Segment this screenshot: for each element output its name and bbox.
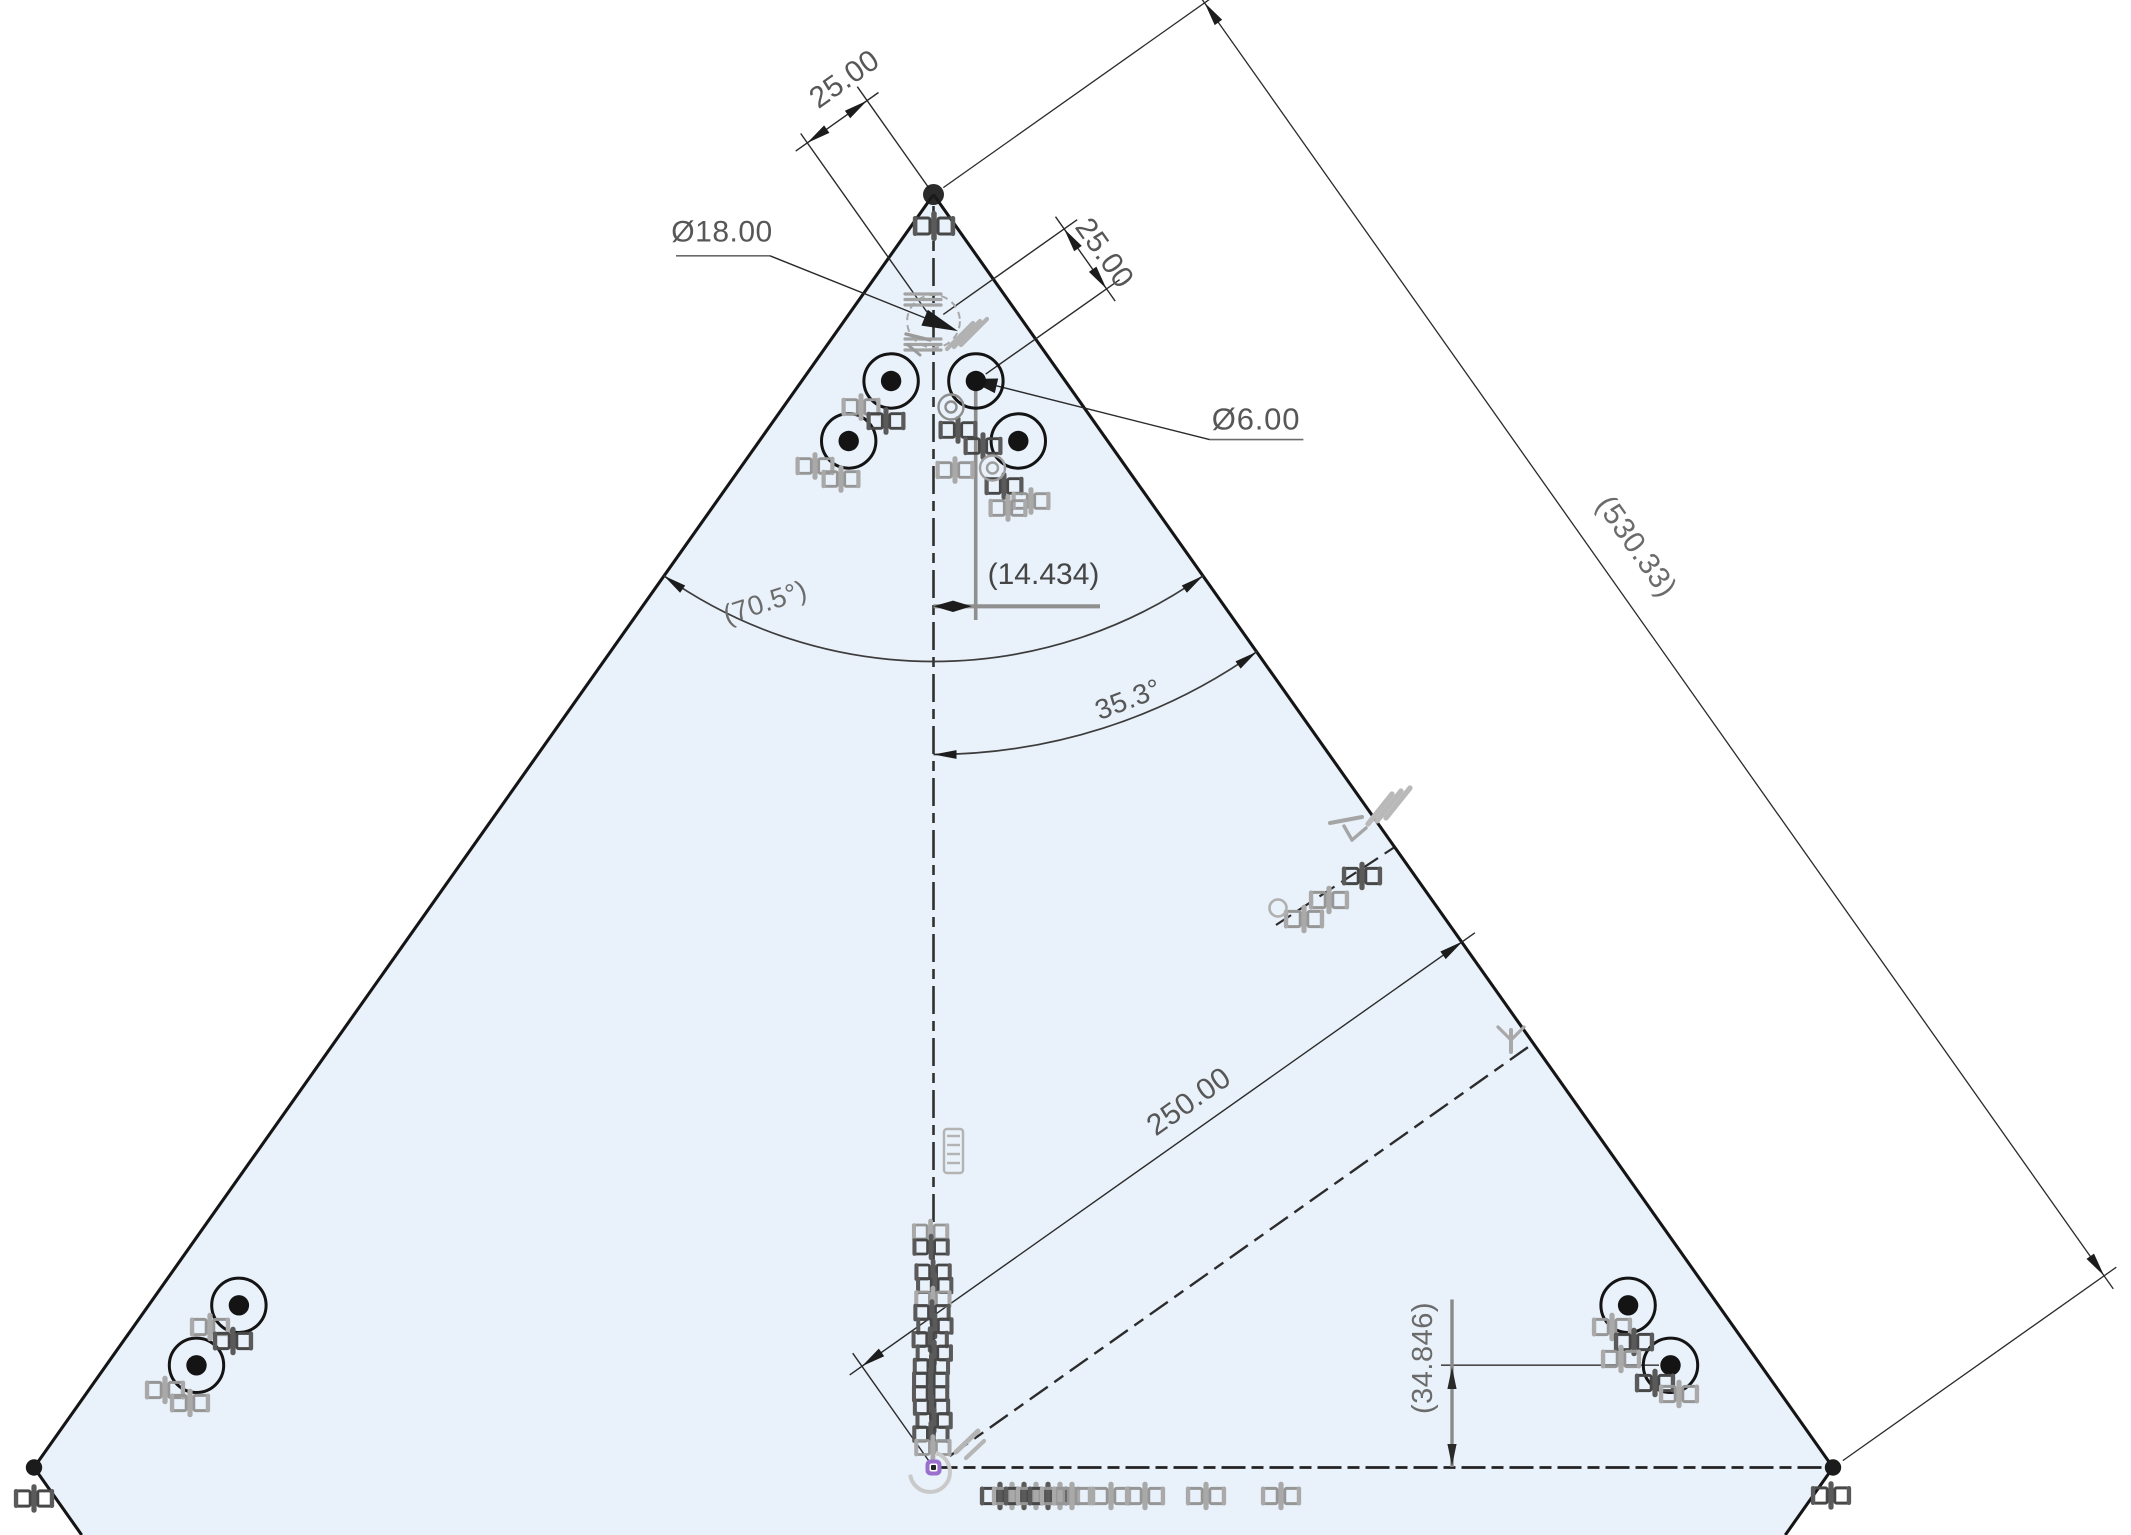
svg-text:Ø6.00: Ø6.00	[1212, 402, 1300, 437]
svg-text:(34.846): (34.846)	[1407, 1302, 1439, 1414]
svg-text:(14.434): (14.434)	[988, 558, 1100, 591]
svg-text:Ø18.00: Ø18.00	[671, 215, 772, 248]
